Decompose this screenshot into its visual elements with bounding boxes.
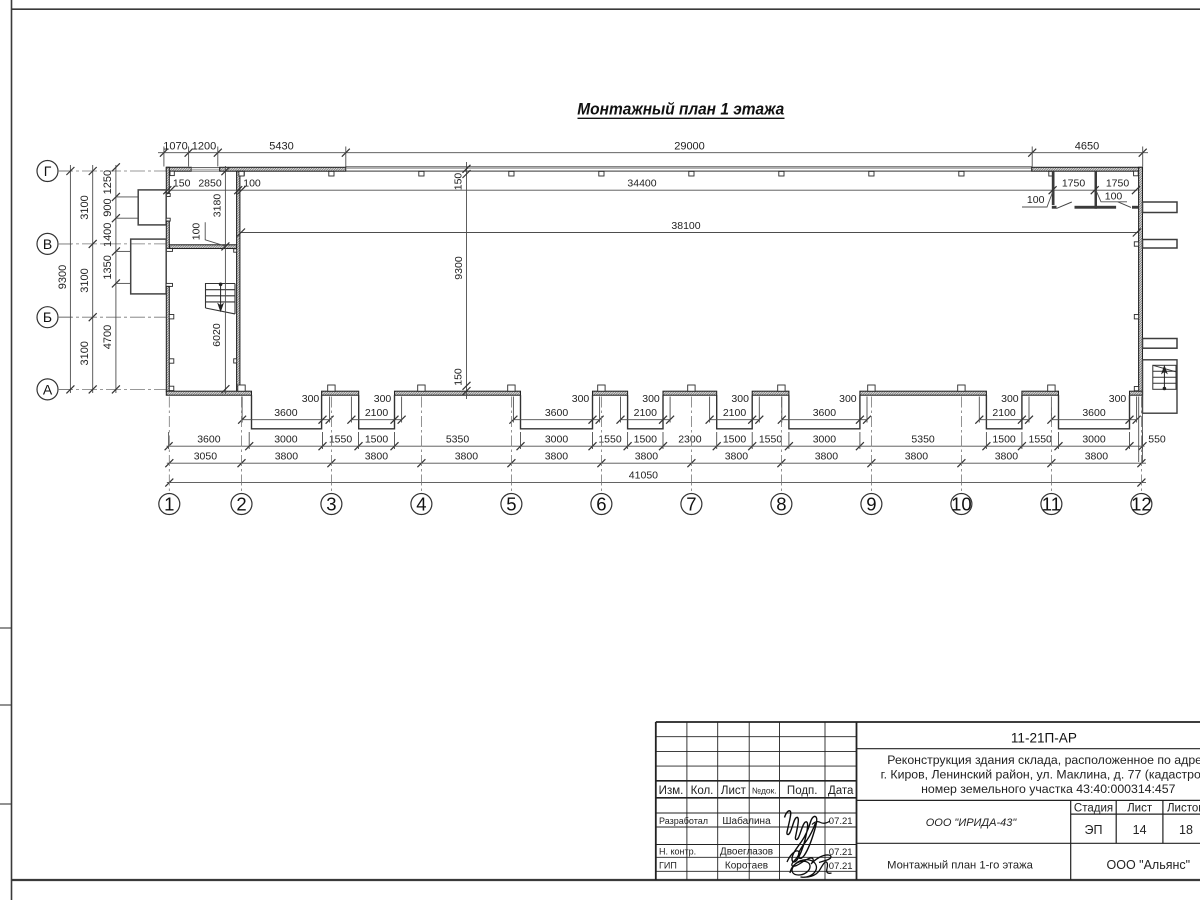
svg-text:18: 18	[1179, 823, 1193, 837]
svg-text:ЭП: ЭП	[1085, 823, 1103, 837]
svg-text:Подп.: Подп.	[787, 785, 818, 797]
svg-text:100: 100	[243, 177, 261, 189]
svg-text:550: 550	[1148, 433, 1166, 445]
svg-text:100: 100	[1105, 191, 1123, 203]
svg-text:Реконструкция здания склада, р: Реконструкция здания склада, расположенн…	[887, 753, 1200, 767]
svg-text:1500: 1500	[365, 433, 389, 445]
svg-text:3800: 3800	[365, 450, 389, 462]
svg-text:300: 300	[731, 393, 749, 405]
svg-text:Изм.: Изм.	[659, 785, 684, 797]
svg-text:3000: 3000	[274, 433, 298, 445]
svg-text:1550: 1550	[1029, 433, 1053, 445]
svg-text:07.21: 07.21	[829, 861, 853, 872]
svg-text:8: 8	[776, 494, 786, 515]
svg-text:ГИП: ГИП	[659, 861, 677, 871]
svg-text:1250: 1250	[102, 170, 114, 194]
svg-text:1550: 1550	[598, 433, 622, 445]
svg-text:34400: 34400	[627, 177, 656, 189]
svg-text:300: 300	[572, 393, 590, 405]
svg-text:38100: 38100	[671, 220, 700, 232]
svg-text:1500: 1500	[992, 433, 1016, 445]
svg-text:1750: 1750	[1062, 178, 1086, 190]
svg-text:150: 150	[453, 173, 465, 191]
svg-text:2: 2	[236, 494, 246, 515]
svg-text:41050: 41050	[629, 470, 658, 482]
svg-text:3800: 3800	[815, 450, 839, 462]
svg-text:7: 7	[686, 494, 696, 515]
svg-text:3600: 3600	[813, 407, 837, 419]
svg-text:900: 900	[102, 198, 114, 216]
svg-text:9: 9	[866, 494, 876, 515]
svg-text:номер земельного участка 43:40: номер земельного участка 43:40:000314:45…	[921, 782, 1175, 796]
svg-text:1500: 1500	[634, 433, 658, 445]
svg-text:Коротаев: Коротаев	[725, 861, 768, 872]
svg-text:ООО "Альянс": ООО "Альянс"	[1107, 858, 1191, 872]
svg-text:3100: 3100	[79, 341, 91, 365]
svg-text:1750: 1750	[1106, 178, 1130, 190]
svg-text:5430: 5430	[269, 141, 293, 153]
svg-text:Лист: Лист	[721, 785, 747, 797]
svg-text:300: 300	[1109, 393, 1127, 405]
svg-text:07.21: 07.21	[829, 847, 853, 858]
svg-text:3600: 3600	[545, 407, 569, 419]
svg-text:В: В	[43, 236, 52, 252]
svg-text:150: 150	[173, 177, 191, 189]
svg-text:2100: 2100	[992, 407, 1016, 419]
svg-text:5: 5	[506, 494, 516, 515]
svg-text:1200: 1200	[192, 141, 216, 153]
svg-text:2850: 2850	[198, 177, 222, 189]
svg-text:3800: 3800	[905, 450, 929, 462]
svg-text:Г: Г	[44, 163, 52, 179]
svg-text:6020: 6020	[211, 323, 223, 347]
svg-text:Лист: Лист	[1127, 803, 1153, 815]
svg-text:Шабалина: Шабалина	[722, 815, 771, 827]
svg-text:300: 300	[1001, 393, 1019, 405]
svg-text:3800: 3800	[725, 450, 749, 462]
svg-text:Дата: Дата	[828, 785, 854, 797]
svg-text:6: 6	[596, 494, 606, 515]
svg-text:5350: 5350	[446, 433, 470, 445]
svg-text:3800: 3800	[1085, 450, 1109, 462]
svg-text:Б: Б	[43, 309, 52, 325]
svg-text:9300: 9300	[57, 265, 69, 289]
svg-text:4700: 4700	[102, 325, 114, 349]
svg-text:3180: 3180	[212, 194, 224, 218]
svg-text:11: 11	[1042, 494, 1061, 515]
svg-text:ООО "ИРИДА-43": ООО "ИРИДА-43"	[926, 817, 1018, 829]
svg-text:Кол.: Кол.	[691, 785, 714, 797]
svg-text:12: 12	[1131, 494, 1152, 515]
svg-text:300: 300	[642, 393, 660, 405]
svg-text:3050: 3050	[194, 450, 218, 462]
svg-text:№док.: №док.	[752, 786, 777, 796]
svg-text:07.21: 07.21	[829, 816, 853, 827]
svg-text:1: 1	[164, 494, 174, 515]
svg-text:3000: 3000	[1082, 433, 1106, 445]
svg-text:1550: 1550	[759, 433, 783, 445]
svg-text:Листов: Листов	[1167, 803, 1200, 815]
svg-text:Монтажный план 1-го этажа: Монтажный план 1-го этажа	[887, 860, 1033, 872]
svg-text:300: 300	[374, 393, 392, 405]
svg-text:3000: 3000	[545, 433, 569, 445]
svg-text:3800: 3800	[455, 450, 479, 462]
svg-text:4650: 4650	[1075, 141, 1099, 153]
svg-text:4: 4	[416, 494, 426, 515]
svg-text:1550: 1550	[329, 433, 353, 445]
svg-text:100: 100	[1027, 194, 1045, 206]
svg-text:150: 150	[453, 368, 465, 386]
svg-text:300: 300	[302, 393, 320, 405]
svg-text:Н. контр.: Н. контр.	[659, 847, 696, 857]
svg-text:г. Киров, Ленинский район, ул.: г. Киров, Ленинский район, ул. Маклина, …	[881, 768, 1200, 782]
svg-text:3800: 3800	[545, 450, 569, 462]
svg-text:Монтажный план 1 этажа: Монтажный план 1 этажа	[577, 101, 784, 119]
svg-text:2300: 2300	[678, 433, 702, 445]
svg-text:100: 100	[191, 223, 203, 241]
svg-text:3: 3	[326, 494, 336, 515]
svg-text:2100: 2100	[723, 407, 747, 419]
svg-text:11-21П-АР: 11-21П-АР	[1011, 730, 1077, 746]
svg-text:3000: 3000	[813, 433, 837, 445]
svg-text:3600: 3600	[197, 433, 221, 445]
svg-text:3800: 3800	[995, 450, 1019, 462]
svg-text:2100: 2100	[634, 407, 658, 419]
svg-text:1500: 1500	[723, 433, 747, 445]
svg-text:5350: 5350	[911, 433, 935, 445]
svg-text:Разработал: Разработал	[659, 816, 708, 826]
svg-text:3100: 3100	[79, 195, 91, 219]
svg-text:29000: 29000	[674, 141, 705, 153]
svg-text:3600: 3600	[1082, 407, 1106, 419]
svg-text:А: А	[43, 381, 53, 397]
svg-text:1350: 1350	[102, 255, 114, 279]
svg-text:3800: 3800	[275, 450, 299, 462]
svg-text:3100: 3100	[79, 268, 91, 292]
svg-text:9300: 9300	[453, 256, 465, 280]
svg-text:Двоеглазов: Двоеглазов	[720, 847, 773, 858]
svg-text:300: 300	[839, 393, 857, 405]
svg-text:1400: 1400	[102, 223, 114, 247]
svg-text:3600: 3600	[274, 407, 298, 419]
svg-text:1070: 1070	[163, 141, 187, 153]
svg-text:3800: 3800	[635, 450, 659, 462]
svg-text:14: 14	[1133, 823, 1147, 837]
svg-text:10: 10	[951, 494, 972, 515]
svg-text:2100: 2100	[365, 407, 389, 419]
svg-text:Стадия: Стадия	[1074, 803, 1113, 815]
